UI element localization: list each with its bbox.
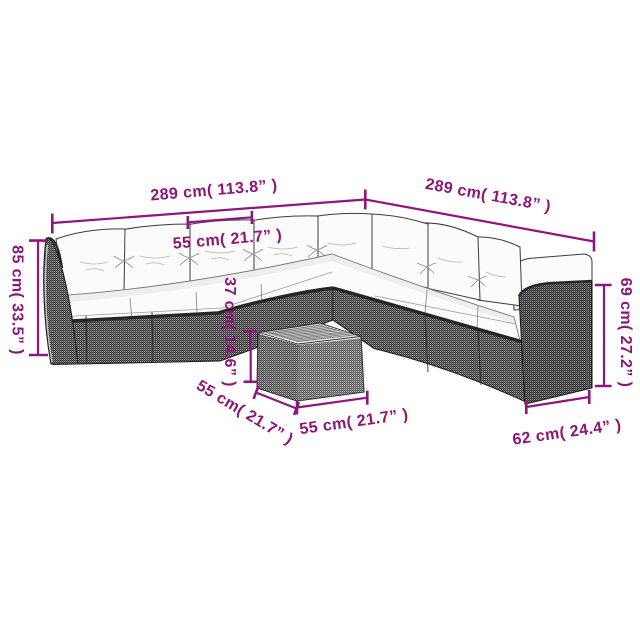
svg-text:85 cm( 33.5” ): 85 cm( 33.5” ) [8, 245, 25, 355]
svg-text:69 cm( 27.2” ): 69 cm( 27.2” ) [617, 278, 634, 388]
svg-text:37 cm( 14.6” ): 37 cm( 14.6” ) [221, 277, 238, 387]
